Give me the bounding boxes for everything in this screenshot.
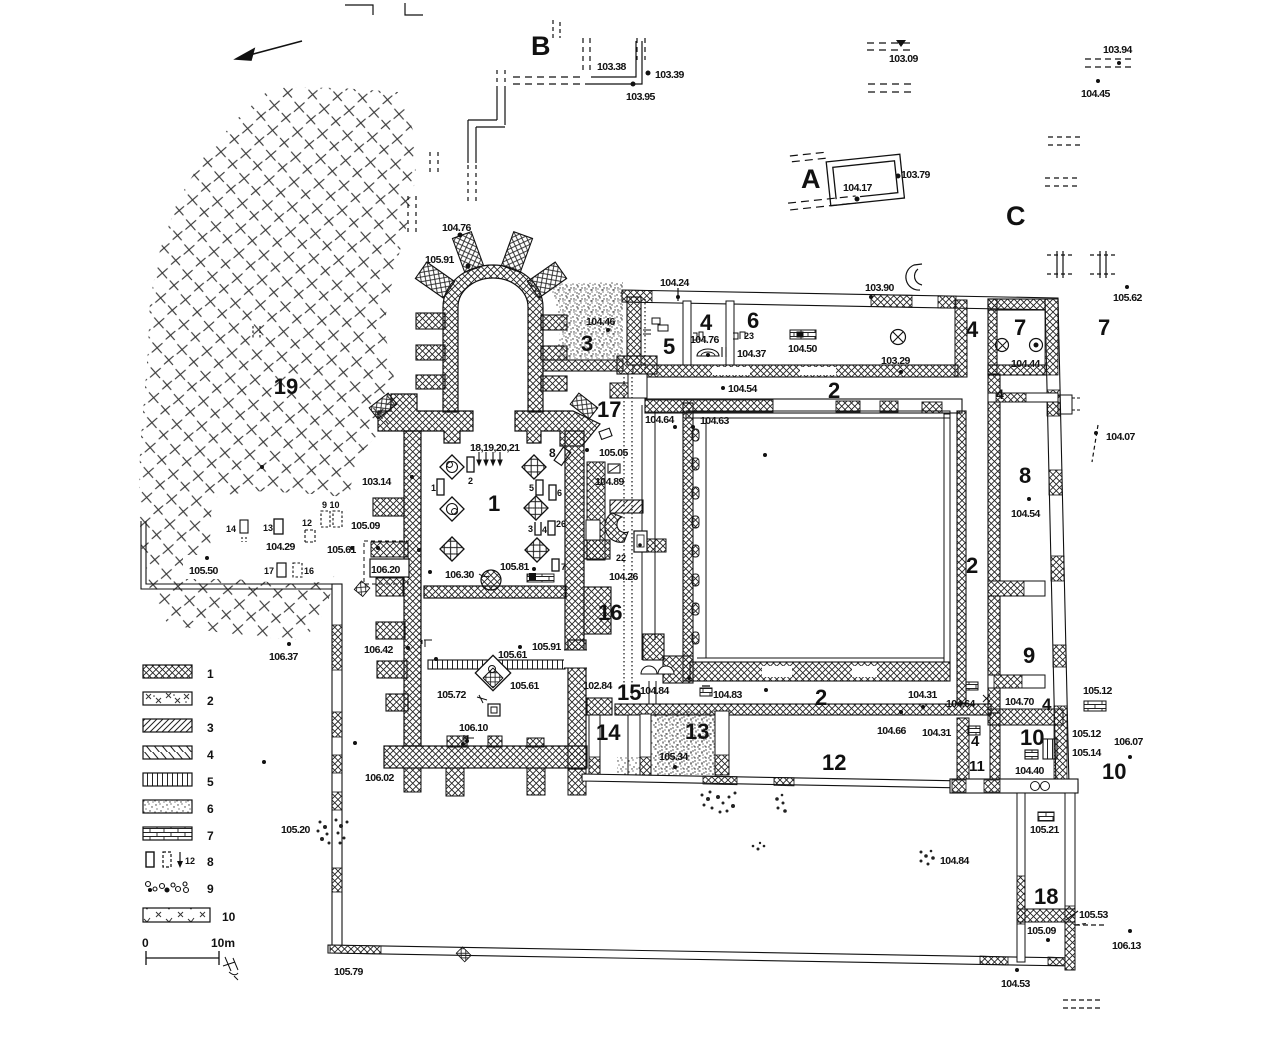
svg-text:12: 12 — [822, 750, 846, 775]
svg-text:C: C — [1006, 201, 1026, 231]
svg-text:4: 4 — [996, 386, 1004, 402]
svg-text:4: 4 — [207, 748, 214, 762]
svg-text:1: 1 — [488, 491, 500, 516]
svg-text:6: 6 — [557, 488, 562, 498]
svg-text:0: 0 — [142, 936, 149, 950]
svg-text:9: 9 — [207, 882, 214, 896]
svg-text:13: 13 — [263, 523, 273, 533]
svg-text:106.37: 106.37 — [269, 651, 299, 663]
svg-text:104.70: 104.70 — [1005, 696, 1035, 708]
svg-text:10: 10 — [1020, 725, 1044, 750]
svg-text:104.76: 104.76 — [690, 334, 720, 346]
svg-text:7: 7 — [1098, 315, 1110, 340]
svg-text:105.79: 105.79 — [334, 966, 364, 978]
svg-text:103.95: 103.95 — [626, 91, 656, 103]
svg-text:10: 10 — [222, 910, 236, 924]
svg-text:105.61: 105.61 — [327, 544, 357, 556]
svg-text:104.24: 104.24 — [660, 277, 690, 289]
svg-text:8: 8 — [1019, 463, 1031, 488]
svg-text:105.21: 105.21 — [1030, 824, 1060, 836]
svg-text:3: 3 — [528, 524, 533, 534]
svg-text:14: 14 — [596, 720, 621, 745]
svg-text:103.29: 103.29 — [881, 355, 911, 367]
svg-text:103.09: 103.09 — [889, 53, 919, 65]
svg-text:5: 5 — [529, 483, 534, 493]
svg-text:4: 4 — [966, 317, 979, 342]
svg-text:2: 2 — [815, 685, 827, 710]
svg-text:10: 10 — [1102, 759, 1126, 784]
svg-text:1: 1 — [431, 483, 436, 493]
svg-text:104.54: 104.54 — [1011, 508, 1041, 520]
svg-text:106.42: 106.42 — [364, 644, 394, 656]
svg-text:104.26: 104.26 — [609, 571, 639, 583]
svg-text:105.14: 105.14 — [1072, 747, 1102, 759]
svg-text:106.02: 106.02 — [365, 772, 395, 784]
svg-text:104.84: 104.84 — [940, 855, 970, 867]
svg-text:104.07: 104.07 — [1106, 431, 1136, 443]
svg-text:19: 19 — [274, 374, 298, 399]
svg-text:26: 26 — [556, 519, 566, 529]
svg-text:5: 5 — [663, 334, 675, 359]
svg-text:104.46: 104.46 — [586, 316, 616, 328]
svg-text:8: 8 — [549, 446, 556, 460]
svg-text:104.89: 104.89 — [595, 476, 625, 488]
svg-text:18,19,20,21: 18,19,20,21 — [470, 442, 520, 454]
svg-text:103.94: 103.94 — [1103, 44, 1133, 56]
svg-text:104.17: 104.17 — [843, 182, 873, 194]
svg-text:104.37: 104.37 — [737, 348, 767, 360]
svg-text:102.84: 102.84 — [583, 680, 613, 692]
svg-text:103.39: 103.39 — [655, 69, 685, 81]
svg-text:105.61: 105.61 — [498, 649, 528, 661]
svg-text:1: 1 — [207, 667, 214, 681]
svg-text:104.66: 104.66 — [877, 725, 907, 737]
svg-text:106.10: 106.10 — [459, 722, 489, 734]
svg-text:104.45: 104.45 — [1081, 88, 1111, 100]
svg-text:15: 15 — [617, 680, 641, 705]
svg-text:104.64: 104.64 — [946, 698, 976, 710]
svg-text:104.64: 104.64 — [645, 414, 675, 426]
svg-text:104.84: 104.84 — [640, 685, 670, 697]
svg-text:6: 6 — [747, 308, 759, 333]
svg-text:105.50: 105.50 — [189, 565, 219, 577]
svg-text:104.31: 104.31 — [908, 689, 938, 701]
svg-text:103.38: 103.38 — [597, 61, 627, 73]
svg-text:104.50: 104.50 — [788, 343, 818, 355]
svg-text:10m: 10m — [211, 936, 235, 950]
svg-text:105.12: 105.12 — [1083, 685, 1113, 697]
svg-text:12: 12 — [185, 856, 195, 866]
svg-text:A: A — [801, 164, 821, 194]
svg-text:104.31: 104.31 — [922, 727, 952, 739]
svg-text:105.91: 105.91 — [532, 641, 562, 653]
svg-text:105.91: 105.91 — [425, 254, 455, 266]
svg-text:104.44: 104.44 — [1011, 358, 1041, 370]
svg-text:103.79: 103.79 — [901, 169, 931, 181]
svg-text:104.40: 104.40 — [1015, 765, 1045, 777]
svg-text:2: 2 — [468, 476, 473, 486]
svg-text:104.63: 104.63 — [700, 415, 730, 427]
svg-text:7: 7 — [1014, 315, 1026, 340]
svg-text:104.54: 104.54 — [728, 383, 758, 395]
svg-text:2: 2 — [828, 378, 840, 403]
svg-text:9 10: 9 10 — [322, 500, 340, 510]
svg-text:16: 16 — [598, 600, 622, 625]
svg-text:12: 12 — [302, 518, 312, 528]
svg-text:16: 16 — [304, 566, 314, 576]
svg-text:18: 18 — [1034, 884, 1058, 909]
svg-text:105.61: 105.61 — [510, 680, 540, 692]
svg-text:17: 17 — [597, 397, 621, 422]
svg-text:105.34: 105.34 — [659, 751, 689, 763]
svg-text:7: 7 — [207, 829, 214, 843]
svg-text:104.53: 104.53 — [1001, 978, 1031, 990]
svg-text:105.53: 105.53 — [1079, 909, 1109, 921]
svg-text:23: 23 — [744, 331, 754, 341]
svg-text:105.81: 105.81 — [500, 561, 530, 573]
svg-text:11: 11 — [969, 758, 985, 775]
svg-text:106.13: 106.13 — [1112, 940, 1142, 952]
svg-text:4: 4 — [542, 525, 547, 535]
svg-text:4: 4 — [971, 733, 980, 750]
svg-text:17: 17 — [264, 566, 274, 576]
svg-text:B: B — [531, 31, 551, 61]
svg-text:104.76: 104.76 — [442, 222, 472, 234]
svg-text:105.09: 105.09 — [1027, 925, 1057, 937]
svg-text:105.05: 105.05 — [599, 447, 629, 459]
svg-text:4: 4 — [700, 310, 713, 335]
svg-text:9: 9 — [1023, 643, 1035, 668]
svg-text:105.12: 105.12 — [1072, 728, 1102, 740]
svg-text:2: 2 — [966, 553, 978, 578]
svg-text:7: 7 — [561, 562, 566, 572]
svg-text:105.20: 105.20 — [281, 824, 311, 836]
svg-text:3: 3 — [207, 721, 214, 735]
svg-text:3: 3 — [581, 331, 593, 356]
svg-text:103.90: 103.90 — [865, 282, 895, 294]
svg-text:106.07: 106.07 — [1114, 736, 1144, 748]
svg-text:8: 8 — [207, 855, 214, 869]
svg-text:104.29: 104.29 — [266, 541, 296, 553]
svg-text:13: 13 — [685, 719, 709, 744]
svg-text:14: 14 — [226, 524, 236, 534]
svg-text:4: 4 — [1042, 695, 1052, 714]
svg-text:105.62: 105.62 — [1113, 292, 1143, 304]
svg-text:105.72: 105.72 — [437, 689, 467, 701]
svg-text:5: 5 — [207, 775, 214, 789]
svg-text:105.09: 105.09 — [351, 520, 381, 532]
svg-text:2: 2 — [207, 694, 214, 708]
svg-text:106.20: 106.20 — [371, 564, 401, 576]
svg-text:104.83: 104.83 — [713, 689, 743, 701]
svg-text:103.14: 103.14 — [362, 476, 392, 488]
svg-text:106.30: 106.30 — [445, 569, 475, 581]
svg-text:22: 22 — [616, 553, 626, 563]
svg-text:6: 6 — [207, 802, 214, 816]
